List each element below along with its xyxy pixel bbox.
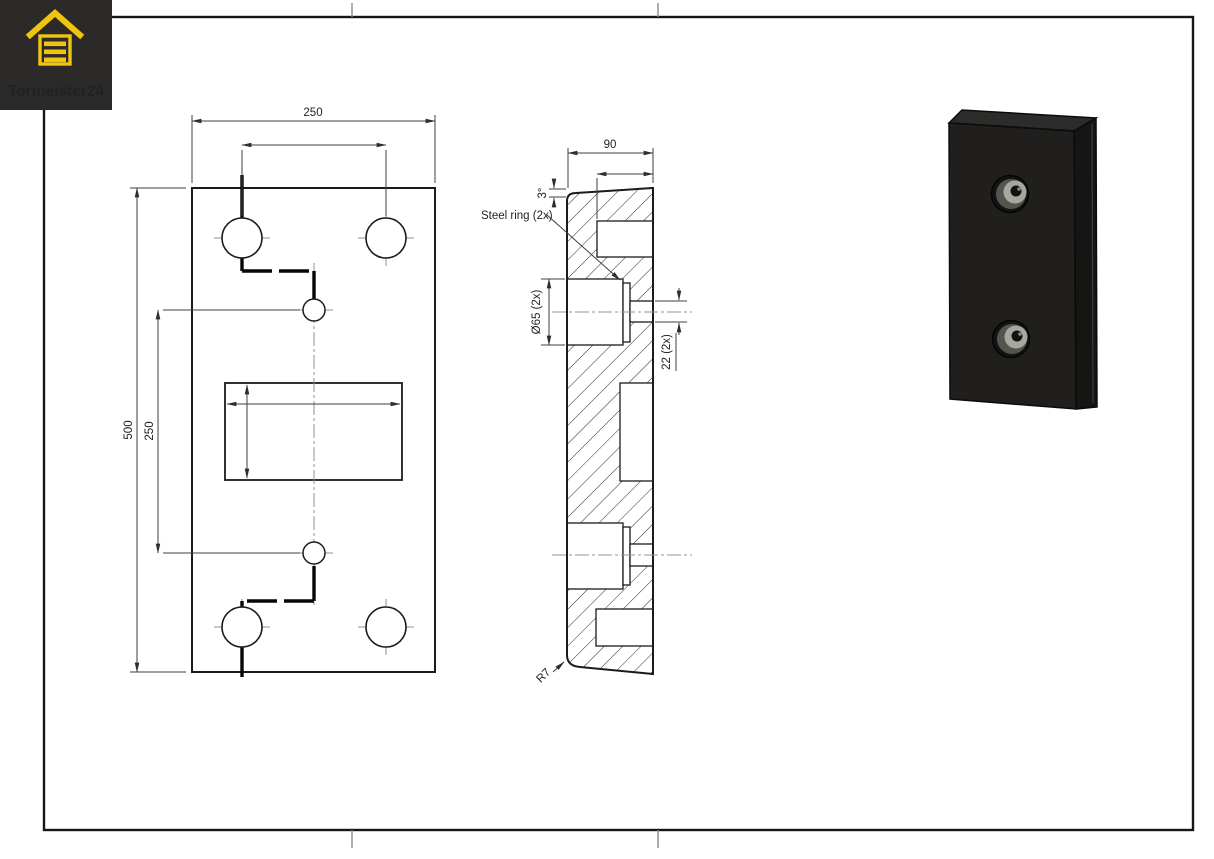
- drawing-sheet: 250 500 250: [0, 0, 1214, 859]
- technical-drawing-canvas: 250 500 250: [0, 0, 1214, 859]
- render-3d: [949, 110, 1097, 409]
- dim-width-label: 250: [303, 107, 322, 119]
- dim-corner-radius-label: R7: [534, 666, 553, 685]
- brand-name: Tormeister24: [8, 83, 105, 100]
- logo: Tormeister24: [0, 0, 112, 110]
- dim-hole-distance-label: 250: [144, 421, 156, 440]
- dim-through-hole-label: 22 (2x): [661, 334, 673, 370]
- bumper-hole-upper: [992, 176, 1029, 213]
- dim-depth-label: 90: [604, 139, 617, 151]
- section-view: 90 3° Steel ring (2x) Ø65 (2x) 22 (2x) R…: [481, 139, 692, 685]
- dim-height-label: 500: [123, 420, 135, 439]
- front-view: 250 500 250: [123, 107, 435, 677]
- dim-draft-angle-label: 3°: [537, 188, 549, 199]
- bumper-hole-lower: [993, 321, 1030, 358]
- bumper-side-face: [1074, 118, 1097, 409]
- dim-ring-diameter-label: Ø65 (2x): [531, 289, 543, 334]
- bumper-front-face: [949, 123, 1076, 409]
- steel-ring-label: Steel ring (2x): [481, 210, 553, 222]
